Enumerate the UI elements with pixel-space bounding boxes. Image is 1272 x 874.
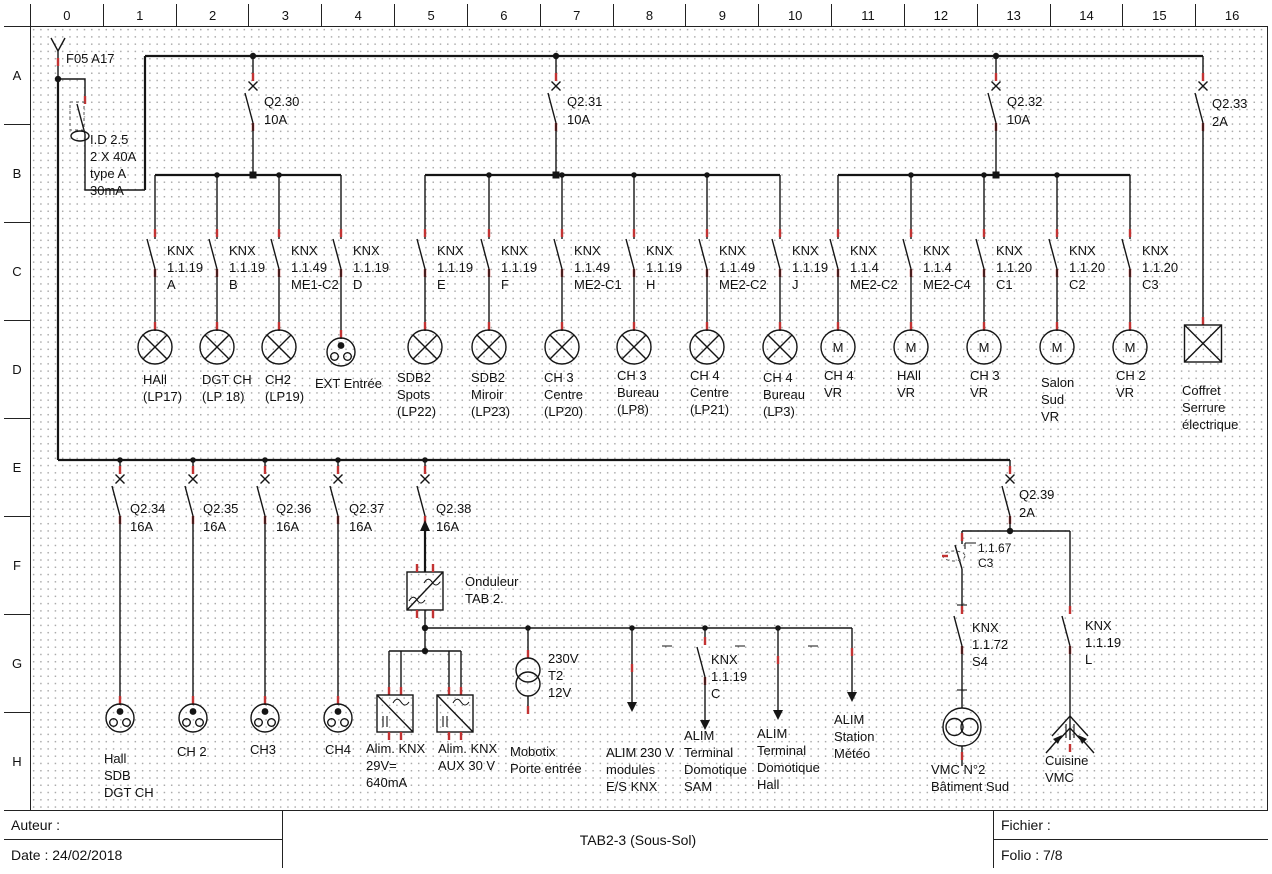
title-block: Auteur : Date : 24/02/2018 TAB2-3 (Sous-… <box>4 810 1268 868</box>
alim-station-meteo-drop <box>847 628 857 702</box>
knx-switch-s4-icon <box>954 606 967 708</box>
label-breaker-q2-38: Q2.3816A <box>436 500 471 536</box>
label-knx-contact: KNX 1.1.4 ME2-C2 <box>850 242 898 293</box>
label-load: Coffret Serrure électrique <box>1182 382 1238 433</box>
label-load: CH 3 VR <box>970 367 1000 401</box>
label-knx-contact: KNX 1.1.19 A <box>167 242 203 293</box>
breaker-q2-32-icon <box>988 56 1001 179</box>
label-knx-contact: KNX 1.1.19 F <box>501 242 537 293</box>
label-knx-contact: KNX 1.1.49 ME2-C1 <box>574 242 622 293</box>
svg-text:M: M <box>1125 340 1136 355</box>
label-load: DGT CH (LP 18) <box>202 371 252 405</box>
label-load: SDB2 Spots (LP22) <box>397 369 436 420</box>
label-load: Cuisine VMC <box>1045 752 1088 786</box>
knx-psu-feeders <box>389 628 461 695</box>
schematic-sheet: 0 1 2 3 4 5 6 7 8 9 10 11 12 13 14 15 16… <box>0 0 1272 874</box>
label-knx-contact: KNX 1.1.20 C2 <box>1069 242 1105 293</box>
label-breaker-q2-32: Q2.3210A <box>1007 93 1042 129</box>
label-knx-contact: KNX 1.1.49 ME2-C2 <box>719 242 767 293</box>
alim-230v-drop <box>627 628 637 712</box>
label-load: SDB2 Miroir (LP23) <box>471 369 510 420</box>
breaker-q2-31-icon <box>548 56 561 179</box>
label-load: Alim. KNX 29V= 640mA <box>366 740 425 791</box>
breaker-q2-33-icon <box>1195 56 1208 325</box>
author-field: Auteur : <box>4 811 282 840</box>
svg-text:M: M <box>833 340 844 355</box>
vmc-motor-icon <box>943 708 981 766</box>
label-breaker-q2-34: Q2.3416A <box>130 500 165 536</box>
label-knx-contact: KNX 1.1.20 C1 <box>996 242 1032 293</box>
label-load: ALIM Station Météo <box>834 711 874 762</box>
title-block-left: Auteur : Date : 24/02/2018 <box>4 811 283 868</box>
drawing-title: TAB2-3 (Sous-Sol) <box>283 811 993 868</box>
label-breaker-q2-37: Q2.3716A <box>349 500 384 536</box>
label-incoming-feeder: F05 A17 <box>66 50 114 67</box>
inverter-box-icon <box>407 564 443 628</box>
label-breaker-q2-30: Q2.3010A <box>264 93 299 129</box>
knx-contact-c-drop <box>697 628 710 730</box>
label-load: ALIM 230 V modules E/S KNX <box>606 744 674 795</box>
label-load: EXT Entrée <box>315 375 382 392</box>
knx-switch-l-icon <box>1062 531 1070 740</box>
label-load: CH 4 VR <box>824 367 854 401</box>
label-load: CH 2 <box>177 743 207 760</box>
motor-icons: M M M M M <box>821 322 1147 364</box>
incoming-feeder <box>51 38 65 460</box>
label-inverter: Onduleur TAB 2. <box>465 573 518 607</box>
label-knx-contact: KNX 1.1.49 ME1-C2 <box>291 242 339 293</box>
label-load: ALIM Terminal Domotique SAM <box>684 727 747 795</box>
label-load: Hall SDB DGT CH <box>104 750 154 801</box>
label-load: HAll VR <box>897 367 921 401</box>
label-knx-contact: KNX 1.1.19 D <box>353 242 389 293</box>
relay-contact-1-1-67-icon <box>942 531 976 612</box>
label-knx-contact: KNX 1.1.19 J <box>792 242 828 293</box>
date-field: Date : 24/02/2018 <box>4 840 282 869</box>
label-breaker-q2-35: Q2.3516A <box>203 500 238 536</box>
label-knx-switch-l: KNX 1.1.19 L <box>1085 617 1121 668</box>
label-knx-contact-c: KNX 1.1.19 C <box>711 651 747 702</box>
label-load: HAll (LP17) <box>143 371 182 405</box>
label-load: CH3 <box>250 741 276 758</box>
label-load: CH 4 Bureau (LP3) <box>763 369 805 420</box>
label-relay-contact: 1.1.67 C3 <box>978 541 1011 571</box>
label-load: ALIM Terminal Domotique Hall <box>757 725 820 793</box>
label-load: Mobotix Porte entrée <box>510 743 582 777</box>
bus-row-g <box>422 625 852 646</box>
bus-row-a <box>145 53 1203 59</box>
svg-text:M: M <box>1052 340 1063 355</box>
label-knx-contact: KNX 1.1.19 E <box>437 242 473 293</box>
lower-breaker-icons <box>112 460 430 705</box>
transformer-icon <box>516 628 540 714</box>
knx-aux-psu-box-icon <box>437 695 473 740</box>
label-breaker-q2-31: Q2.3110A <box>567 93 602 129</box>
svg-text:M: M <box>979 340 990 355</box>
label-load: CH4 <box>325 741 351 758</box>
label-load: CH 3 Bureau (LP8) <box>617 367 659 418</box>
label-load: CH 3 Centre (LP20) <box>544 369 583 420</box>
socket-icons-row-h <box>106 696 352 732</box>
label-load: CH 2 VR <box>1116 367 1146 401</box>
breaker-q2-30-icon <box>245 56 258 179</box>
label-breaker-q2-36: Q2.3616A <box>276 500 311 536</box>
alim-terminal-hall-drop <box>773 628 783 720</box>
ext-socket-icon <box>327 330 355 366</box>
label-load: CH 4 Centre (LP21) <box>690 367 729 418</box>
label-load: CH2 (LP19) <box>265 371 304 405</box>
label-knx-contact: KNX 1.1.20 C3 <box>1142 242 1178 293</box>
label-breaker-q2-33: Q2.332A <box>1212 95 1247 131</box>
label-load: Alim. KNX AUX 30 V <box>438 740 497 774</box>
lamp-icons <box>138 322 797 364</box>
label-breaker-q2-39: Q2.392A <box>1019 486 1054 522</box>
label-rcd: I.D 2.5 2 X 40A type A 30mA <box>90 131 136 199</box>
svg-text:M: M <box>906 340 917 355</box>
label-load: Salon Sud VR <box>1041 374 1074 425</box>
folio-field: Folio : 7/8 <box>994 840 1268 869</box>
title-block-right: Fichier : Folio : 7/8 <box>993 811 1268 868</box>
label-knx-contact: KNX 1.1.4 ME2-C4 <box>923 242 971 293</box>
door-lock-box-icon <box>1185 325 1222 362</box>
label-knx-contact: KNX 1.1.19 H <box>646 242 682 293</box>
label-transformer: 230V T2 12V <box>548 650 578 701</box>
label-knx-contact: KNX 1.1.19 B <box>229 242 265 293</box>
label-knx-switch-s4: KNX 1.1.72 S4 <box>972 619 1008 670</box>
bus-row-e <box>58 457 1010 463</box>
label-load: VMC N°2 Bâtiment Sud <box>931 761 1009 795</box>
knx-psu-box-icon <box>377 695 413 740</box>
file-field: Fichier : <box>994 811 1268 840</box>
